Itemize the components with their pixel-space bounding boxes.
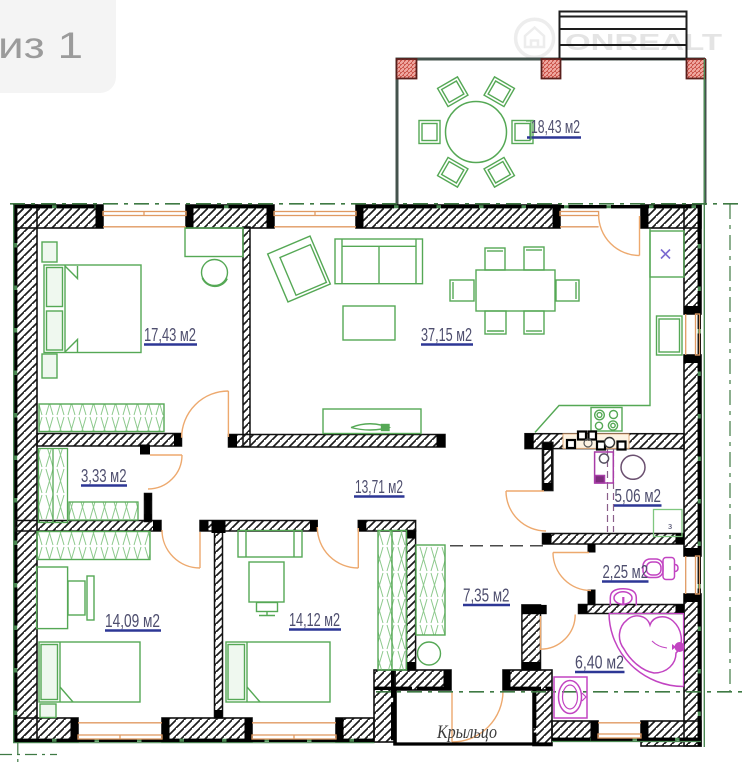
- svg-text:18,43 м2: 18,43 м2: [531, 117, 580, 137]
- svg-text:5,06 м2: 5,06 м2: [615, 486, 662, 506]
- svg-text:из 1: из 1: [0, 25, 83, 66]
- svg-text:6,40 м2: 6,40 м2: [575, 653, 624, 673]
- svg-text:7,35 м2: 7,35 м2: [463, 586, 510, 606]
- svg-text:14,12 м2: 14,12 м2: [289, 610, 340, 630]
- svg-text:2,25 м2: 2,25 м2: [603, 562, 649, 582]
- svg-text:3,33 м2: 3,33 м2: [81, 466, 127, 486]
- svg-text:Крыльцо: Крыльцо: [436, 722, 497, 743]
- svg-text:ONREALT: ONREALT: [565, 29, 722, 55]
- svg-text:37,15 м2: 37,15 м2: [421, 325, 472, 345]
- svg-text:14,09 м2: 14,09 м2: [105, 611, 160, 631]
- svg-text:17,43 м2: 17,43 м2: [144, 325, 196, 345]
- svg-text:з: з: [668, 521, 672, 531]
- svg-text:13,71 м2: 13,71 м2: [355, 477, 403, 497]
